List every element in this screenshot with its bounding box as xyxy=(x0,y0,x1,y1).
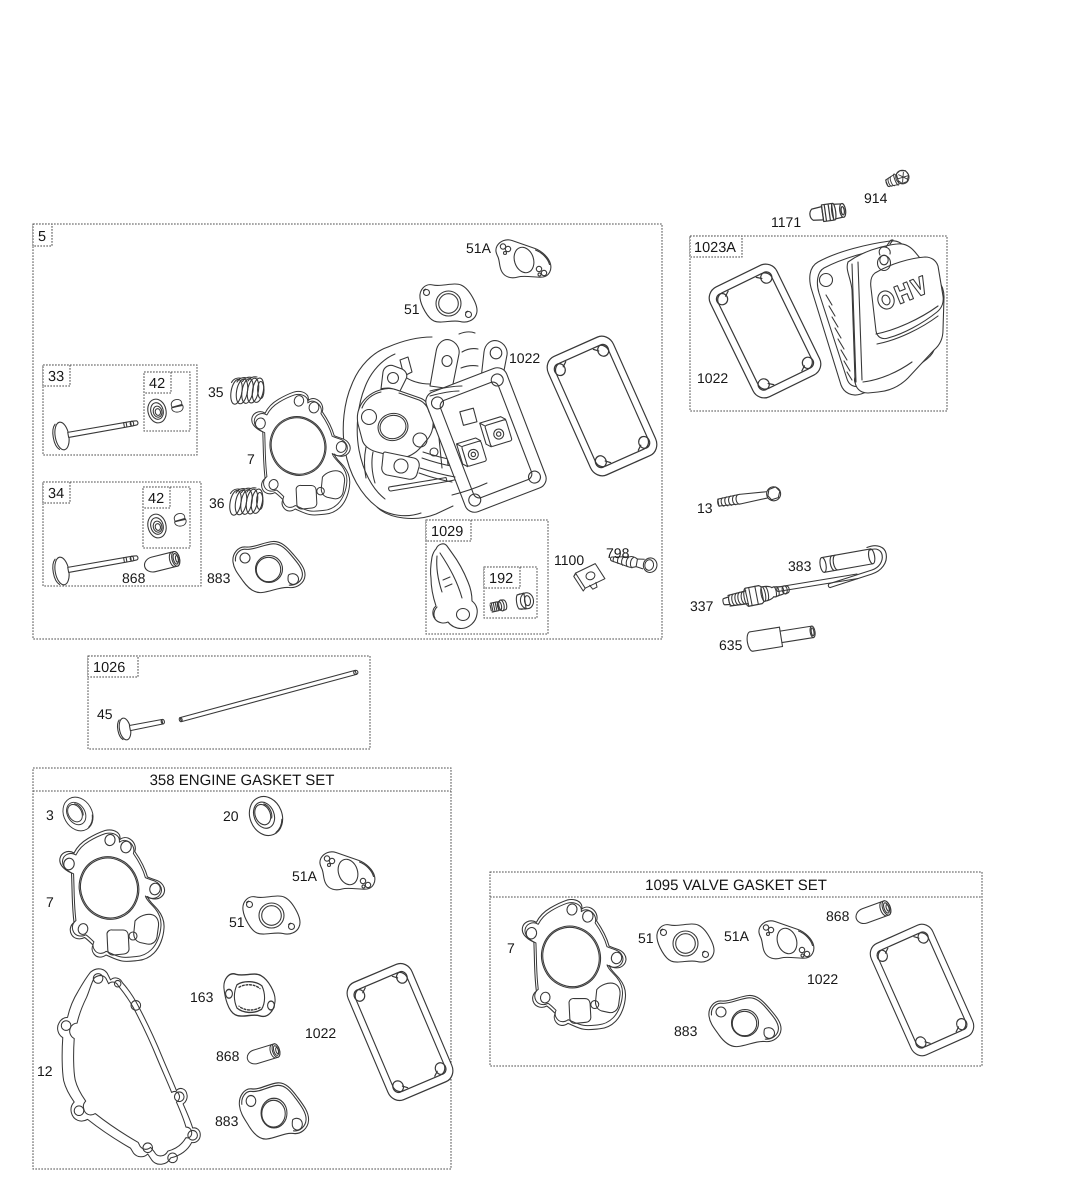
svg-text:51A: 51A xyxy=(724,928,750,944)
svg-text:42: 42 xyxy=(148,491,164,507)
svg-text:1100: 1100 xyxy=(554,552,584,568)
svg-text:1023A: 1023A xyxy=(694,240,736,256)
svg-text:13: 13 xyxy=(697,500,713,516)
svg-text:45: 45 xyxy=(97,706,113,722)
svg-text:35: 35 xyxy=(208,384,224,400)
svg-text:51: 51 xyxy=(404,301,420,317)
svg-text:34: 34 xyxy=(48,486,64,502)
svg-text:914: 914 xyxy=(864,190,888,206)
svg-text:33: 33 xyxy=(48,369,64,385)
svg-text:36: 36 xyxy=(209,495,225,511)
svg-text:20: 20 xyxy=(223,808,239,824)
svg-text:51A: 51A xyxy=(466,240,492,256)
svg-text:635: 635 xyxy=(719,637,743,653)
svg-text:5: 5 xyxy=(38,229,46,245)
svg-text:7: 7 xyxy=(46,894,54,910)
svg-text:7: 7 xyxy=(247,451,255,467)
svg-text:798: 798 xyxy=(606,545,630,561)
svg-text:883: 883 xyxy=(215,1113,239,1129)
svg-text:1022: 1022 xyxy=(697,370,728,386)
svg-text:883: 883 xyxy=(207,570,231,586)
svg-text:868: 868 xyxy=(216,1048,240,1064)
svg-text:383: 383 xyxy=(788,558,812,574)
svg-text:1026: 1026 xyxy=(93,660,125,676)
svg-text:883: 883 xyxy=(674,1023,698,1039)
svg-text:337: 337 xyxy=(690,598,714,614)
svg-text:3: 3 xyxy=(46,807,54,823)
svg-text:1022: 1022 xyxy=(807,971,838,987)
svg-text:51: 51 xyxy=(638,930,654,946)
svg-text:51: 51 xyxy=(229,914,245,930)
svg-text:163: 163 xyxy=(190,989,214,1005)
svg-text:1095 VALVE GASKET SET: 1095 VALVE GASKET SET xyxy=(645,877,827,894)
svg-text:12: 12 xyxy=(37,1063,53,1079)
svg-text:868: 868 xyxy=(122,570,146,586)
svg-text:51A: 51A xyxy=(292,868,318,884)
svg-text:1171: 1171 xyxy=(771,214,801,230)
svg-text:1022: 1022 xyxy=(509,350,540,366)
svg-text:192: 192 xyxy=(489,571,513,587)
svg-text:42: 42 xyxy=(149,376,165,392)
svg-text:1022: 1022 xyxy=(305,1025,336,1041)
svg-text:358 ENGINE GASKET SET: 358 ENGINE GASKET SET xyxy=(150,772,335,789)
svg-text:7: 7 xyxy=(507,940,515,956)
svg-text:868: 868 xyxy=(826,908,850,924)
svg-text:1029: 1029 xyxy=(431,524,463,540)
